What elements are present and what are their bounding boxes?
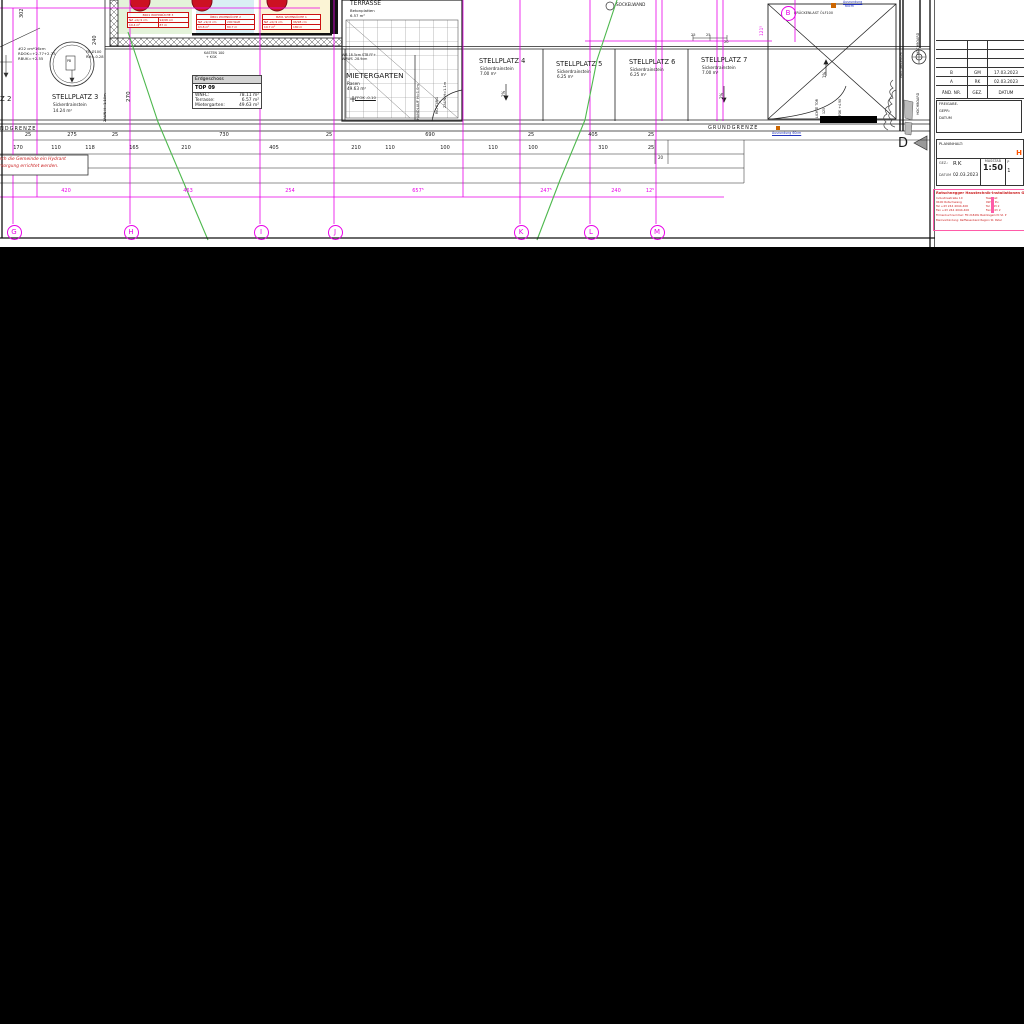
stellplatz-6-label: STELLPLATZ 6 — [629, 59, 675, 66]
floor-plan-sheet[interactable]: Z 2STELLPLATZ 3Sickerdrainstein14.24 m²#… — [0, 0, 1024, 247]
hydrant-note-2: versorgung errichtet werden. — [0, 165, 58, 170]
company-legal-line: Firmenbuchnummer: FN 21848x Bezirksgeric… — [936, 213, 1022, 217]
revision-row — [936, 59, 1024, 68]
datum-label: DATUM — [939, 173, 951, 177]
dim-row-top: 25 — [112, 133, 118, 138]
grid-bubble-l: L — [584, 225, 599, 240]
slope-2pct-right: 2% — [720, 93, 724, 99]
mast-label: MAST/BELEUCHT. — [900, 50, 903, 78]
mietergarten-area: 49.63 m² — [347, 87, 366, 91]
stellplatz-2-label: Z 2 — [0, 96, 11, 103]
grid-bubble-i: I — [254, 225, 269, 240]
dim-row-mid: 165 — [129, 146, 139, 151]
grid-bubble-g: G — [7, 225, 22, 240]
dim-row-mid: 210 — [181, 146, 191, 151]
stellplatz-3-label: STELLPLATZ 3 — [52, 94, 98, 101]
kasten-note-2: + KGK — [206, 56, 217, 59]
plan-drawing — [0, 0, 1024, 247]
dim-row-top: 25 — [326, 133, 332, 138]
ausrundung-bottom: Ausrundung 60cm — [772, 132, 801, 135]
dim-row-mid: 100 — [528, 146, 538, 151]
dim-240: 240 — [93, 35, 98, 45]
dim-row-top: 275 — [67, 133, 77, 138]
plan-title-fragment: H — [1016, 149, 1022, 157]
grid-bubble-b: B — [781, 6, 796, 21]
title-block: BGM17.03.2023ARK02.03.2023ÄND. NR.GEZ.DA… — [935, 0, 1024, 247]
contour-line-left — [128, 32, 208, 240]
slope-2pct-left: 2% — [502, 91, 506, 97]
dim-row-top: 690 — [425, 133, 435, 138]
dim-row-top: 25 — [648, 133, 654, 138]
stellplatz-5-label: STELLPLATZ 5 — [556, 61, 602, 68]
hochboard-label-2: HOCHBOARD — [917, 93, 921, 115]
dim-270: 270 — [127, 91, 133, 102]
stellplatz-6-area: 6.25 m² — [630, 73, 646, 77]
room-tag-3: BZ01 WOHNKÜCHE 1NZ +0/-9 cm96/98 cm19.7 … — [262, 14, 321, 30]
dim-20-b: 20 — [658, 156, 663, 160]
col3-top: P — [1007, 160, 1022, 164]
gez-label: GEZ.: — [939, 161, 948, 165]
stellplatz-5-area: 6.25 m² — [557, 75, 573, 79]
dim-row-top: 25 — [25, 133, 31, 138]
masstab-value: 1:50 — [981, 163, 1006, 172]
dim-row-top: 25 — [528, 133, 534, 138]
dim-20-a: 20 — [724, 41, 729, 45]
terrasse-label: TERRASSE — [350, 1, 381, 7]
sockelwand-symbol-icon — [606, 2, 614, 10]
approval-line: FREIGABE- — [939, 102, 1019, 106]
hochboard-label-1: HOCHBOARD — [917, 33, 921, 55]
dim-row-top: 730 — [219, 133, 229, 138]
dim-row-magenta: 12⁵ — [646, 189, 654, 194]
dim-row-mid: 210 — [351, 146, 361, 151]
dim-row-mid: 405 — [269, 146, 279, 151]
company-legal-line: Bankverbindung: Raiffeisenbank Region St… — [936, 218, 1022, 222]
lichte-tor-label: LICHTE TOR — [816, 99, 819, 118]
richtung-label: RICHTUNG — [436, 97, 439, 114]
unit-info-title: Erdgeschoss — [193, 76, 261, 84]
shaft-note-3: RBUK=+2.55 — [18, 57, 43, 61]
corner-marker-bottom-icon — [776, 126, 780, 130]
dim-row-mid: 310 — [598, 146, 608, 151]
hydrant-note-1: durch die Gemeinde ein Hydrant — [0, 158, 66, 163]
zaun-right-label: ZAUN H=1.1m — [444, 82, 448, 108]
dim-row-magenta: 254 — [285, 189, 295, 194]
grundgrenze-left: NDGRENZE — [0, 127, 36, 132]
dim-row-mid: 110 — [488, 146, 498, 151]
dim-row-magenta: 420 — [61, 189, 71, 194]
approval-line: GEPR: — [939, 109, 1019, 113]
grid-bubble-m: M — [650, 225, 665, 240]
grid-bubble-k: K — [514, 225, 529, 240]
stellplatz-7-area: 7.00 m² — [702, 71, 718, 75]
dim-row-mid: 25 — [648, 146, 654, 151]
mietergarten-label: MIETERGARTEN — [346, 72, 404, 80]
dim-25-b: 25 — [706, 34, 711, 38]
company-address-line: Fax +43 244 4044-400 — [936, 208, 986, 212]
plan-content-box: PLANINHALT: H GEZ.: RK DATUM 02.03.2023 … — [936, 139, 1024, 186]
approval-line: DATUM — [939, 116, 1019, 120]
ffok-tor: FFOK +4.90 — [839, 99, 842, 118]
dim-row-magenta: 247⁵ — [540, 189, 552, 194]
dim-302: 302 — [20, 8, 25, 18]
dim-row-magenta: 240 — [611, 189, 621, 194]
canvas-background: Z 2STELLPLATZ 3Sickerdrainstein14.24 m²#… — [0, 0, 1024, 1024]
dim-row-top: 405 — [588, 133, 598, 138]
datum-value: 02.03.2023 — [953, 173, 978, 178]
revision-table: BGM17.03.2023ARK02.03.2023ÄND. NR.GEZ.DA… — [936, 40, 1024, 99]
sockelwand-label: SOCKELWAND — [616, 3, 645, 7]
planinhalt-label: PLANINHALT: — [937, 140, 1023, 147]
dim-row-mid: 100 — [440, 146, 450, 151]
col3-bottom: 1 — [1007, 168, 1022, 174]
terrasse-area: 6.57 m² — [350, 14, 365, 18]
unit-info-top-number: TOP 09 — [193, 84, 261, 93]
ausrundung-top-2: 60cm — [845, 5, 854, 8]
wb-note-2: WRWS -28.9cm — [342, 58, 367, 61]
ffok-note: FFOK -0.10 — [355, 96, 376, 100]
section-marker-d: D — [898, 137, 908, 151]
grundgrenze-right: GRUNDGRENZE — [708, 126, 758, 131]
unit-info-row: Mietergarten:49.63 m² — [193, 103, 261, 108]
section-d-triangle-icon — [914, 136, 927, 150]
dim-row-mid: 170 — [13, 146, 23, 151]
fb-note-2: RH=-0.28 — [86, 56, 104, 60]
stellplatz-4-label: STELLPLATZ 4 — [479, 58, 525, 65]
stellplatz-4-area: 7.00 m² — [480, 72, 496, 76]
approval-box: FREIGABE-GEPR:DATUM — [936, 100, 1022, 133]
revision-row — [936, 50, 1024, 59]
dim-25-a: 25 — [691, 34, 696, 38]
corner-marker-top-icon — [831, 3, 836, 8]
handlauf-label: HANDLAUF H=1.0m — [417, 84, 421, 120]
grid-bubble-j: J — [328, 225, 343, 240]
gate-bar — [820, 116, 877, 123]
bruckenlast-note: BRÜCKENLAST ÖLF100 — [794, 12, 833, 16]
revision-header-row: ÄND. NR.GEZ.DATUM — [936, 86, 1024, 99]
room-tag-2: ÖB01 WOHNKÜCHE 2NZ +9/-0 cm200 Watt63.8 … — [196, 14, 255, 30]
dim-121-5: 121⁵ — [761, 26, 766, 36]
revision-row: BGM17.03.2023 — [936, 68, 1024, 77]
pb-label: PB — [67, 60, 71, 63]
dim-row-magenta: 657⁵ — [412, 189, 424, 194]
gez-value: RK — [953, 161, 962, 167]
revision-row — [936, 41, 1024, 50]
slope-1pct: 1% — [823, 72, 827, 78]
unit-info-table: Erdgeschoss TOP 09 WNFL:78.11 m²Terrasse… — [192, 75, 262, 109]
stellplatz-3-sub: Sickerdrainstein — [53, 103, 87, 107]
grid-bubble-h: H — [124, 225, 139, 240]
company-stamp: Rotschnegger Haustechnik-Installationen … — [933, 189, 1024, 231]
dim-row-mid: 110 — [51, 146, 61, 151]
stellplatz-3-area: 14.24 m² — [53, 109, 72, 113]
room-tag-1: BK01 WOHNKÜCHE 3NZ +0/-9 cm94/98 cm19.4 … — [127, 12, 189, 28]
stellplatz-7-label: STELLPLATZ 7 — [701, 57, 747, 64]
dim-row-mid: 110 — [385, 146, 395, 151]
stamp-divider-bar — [991, 197, 994, 213]
zaun-left-label: ZAUN H=1.10m — [104, 93, 108, 122]
dim-row-mid: 118 — [85, 146, 95, 151]
company-name: Rotschnegger Haustechnik-Installationen … — [936, 191, 1022, 195]
dim-row-magenta: 463 — [183, 189, 193, 194]
revision-row: ARK02.03.2023 — [936, 77, 1024, 86]
tor-125: 125 — [823, 108, 826, 114]
